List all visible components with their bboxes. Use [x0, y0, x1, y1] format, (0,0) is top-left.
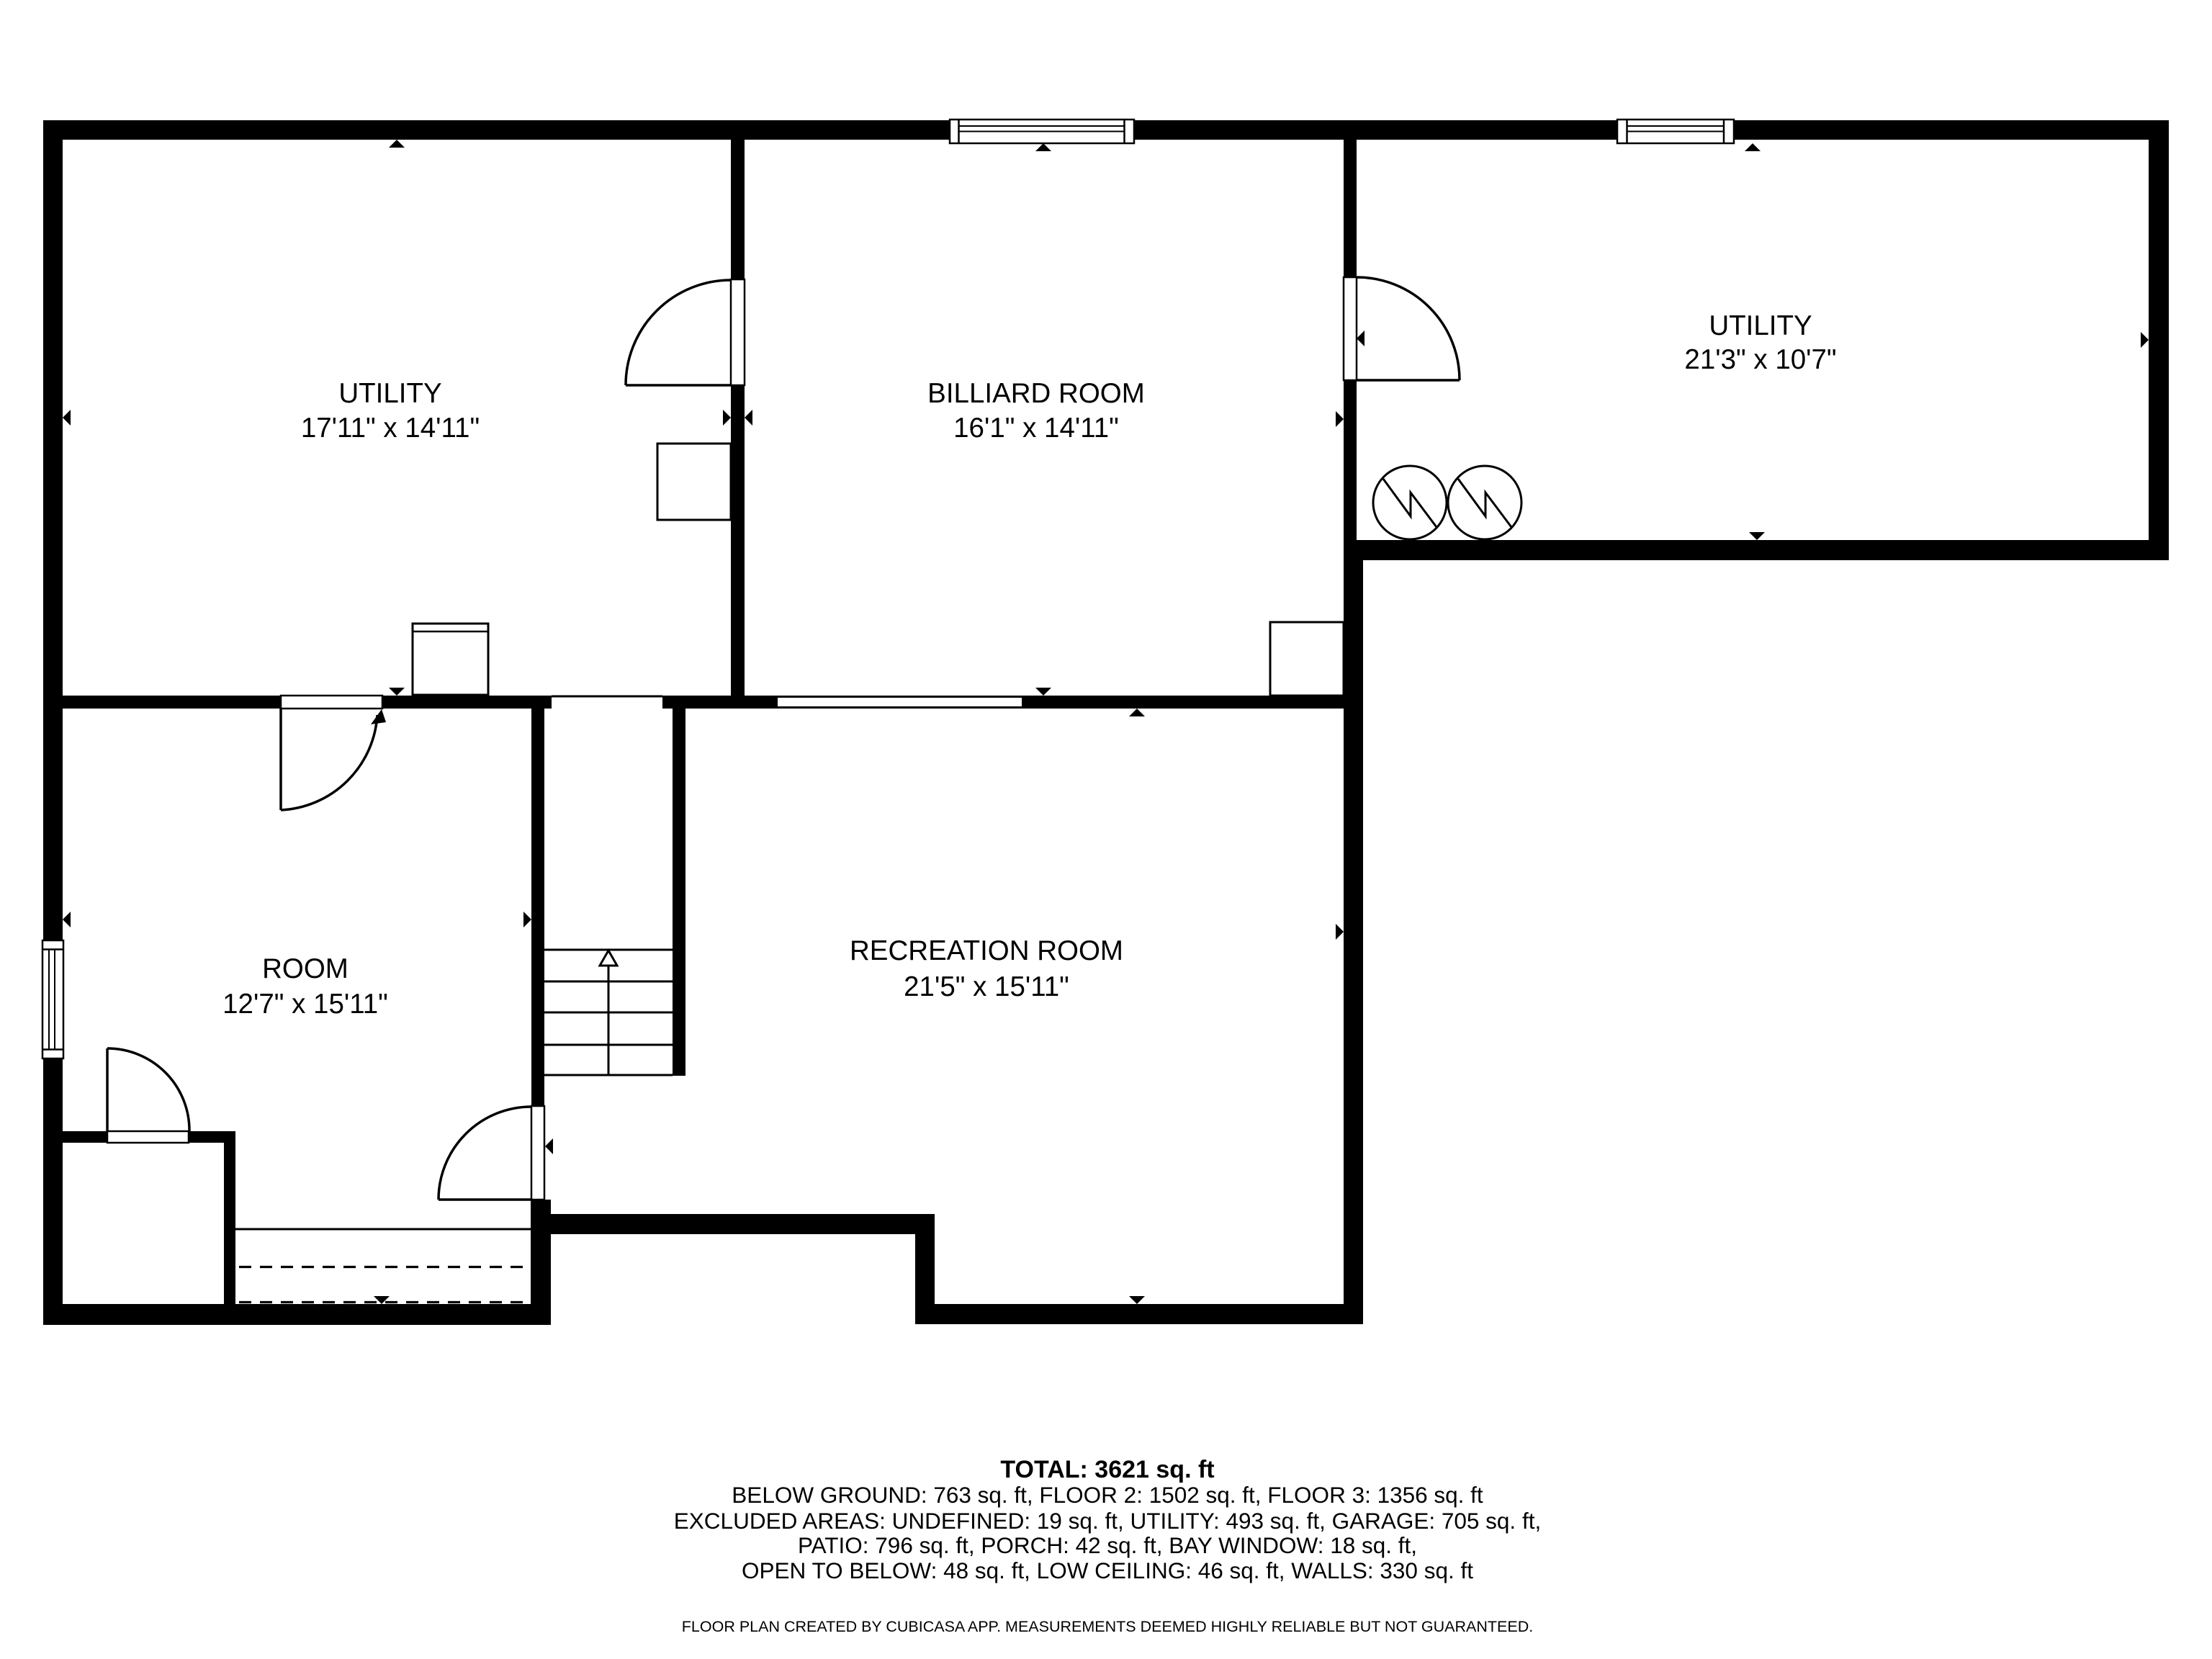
svg-text:UTILITY: UTILITY — [338, 378, 441, 409]
svg-text:PATIO: 796 sq. ft, PORCH: 42 s: PATIO: 796 sq. ft, PORCH: 42 sq. ft, BAY… — [798, 1532, 1417, 1558]
svg-text:12'7" x 15'11": 12'7" x 15'11" — [222, 989, 388, 1020]
svg-text:TOTAL: 3621 sq. ft: TOTAL: 3621 sq. ft — [1000, 1456, 1214, 1483]
svg-text:16'1" x 14'11": 16'1" x 14'11" — [953, 413, 1119, 444]
svg-text:21'3" x 10'7": 21'3" x 10'7" — [1684, 344, 1836, 375]
svg-text:EXCLUDED AREAS: UNDEFINED: 19: EXCLUDED AREAS: UNDEFINED: 19 sq. ft, UT… — [674, 1508, 1541, 1534]
svg-text:RECREATION ROOM: RECREATION ROOM — [850, 935, 1123, 966]
svg-text:BILLIARD ROOM: BILLIARD ROOM — [927, 378, 1145, 409]
svg-text:UTILITY: UTILITY — [1709, 310, 1812, 341]
svg-text:OPEN TO BELOW: 48 sq. ft, LOW: OPEN TO BELOW: 48 sq. ft, LOW CEILING: 4… — [742, 1557, 1473, 1583]
svg-text:17'11" x 14'11": 17'11" x 14'11" — [301, 413, 480, 444]
svg-text:21'5" x 15'11": 21'5" x 15'11" — [904, 971, 1069, 1002]
svg-text:FLOOR PLAN CREATED BY CUBICASA: FLOOR PLAN CREATED BY CUBICASA APP. MEAS… — [682, 1618, 1533, 1635]
svg-text:ROOM: ROOM — [262, 953, 349, 984]
svg-text:BELOW GROUND: 763 sq. ft, FLOO: BELOW GROUND: 763 sq. ft, FLOOR 2: 1502 … — [732, 1482, 1483, 1508]
